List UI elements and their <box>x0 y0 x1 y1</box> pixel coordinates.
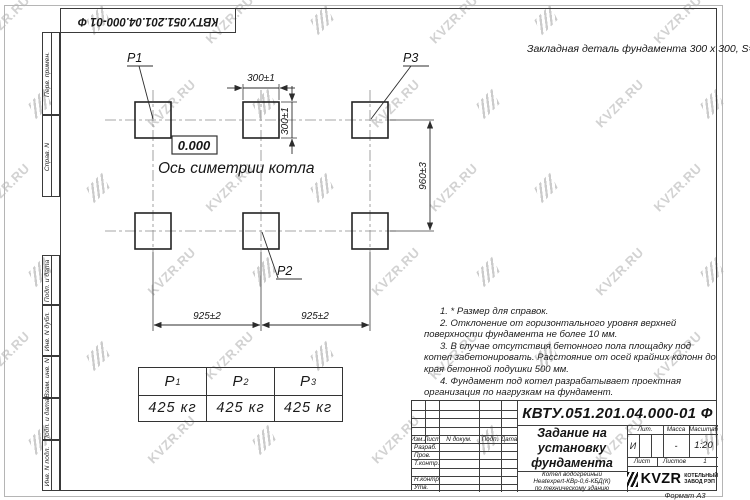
extension-lines <box>153 84 434 331</box>
tb-product: Котел водогрейный Heatexpert-КВр-0,6-КБД… <box>517 471 627 492</box>
tb-row-nkontr: Н.контр. <box>412 476 439 484</box>
tb-lit-value: И <box>627 434 639 457</box>
pad-label-p2: Р2 <box>277 264 292 278</box>
load-table-header-p1: Р1 <box>139 368 206 395</box>
dim-col-spacing-2: 925±2 <box>301 311 329 322</box>
tb-header-izm-list: Изм.Лист <box>412 435 439 443</box>
load-table: Р1 Р2 Р3 425 кг 425 кг 425 кг <box>138 367 343 422</box>
tb-logo-area: KVZR КОТЕЛЬНЫЙ ЗАВОД РЭП <box>627 466 718 492</box>
note-4: 4. Фундамент под котел разрабатывает про… <box>424 376 716 399</box>
title-block: Изм.Лист N докум. Подп. Дата Разраб. Про… <box>411 400 717 491</box>
tb-row-utv: Утв. <box>412 484 439 492</box>
note-1: 1. * Размер для справок. <box>424 306 716 318</box>
tb-title: Задание на установку фундамента <box>517 425 627 471</box>
kvzr-logo-text: KVZR <box>641 471 682 487</box>
format-label: Формат А3 <box>640 491 730 500</box>
note-2: 2. Отклонение от горизонтального уровня … <box>424 318 716 341</box>
dim-col-spacing-1: 925±2 <box>193 311 221 322</box>
sheet-content: КВТУ.051.201.04.000-01 Ф Перв. примен. С… <box>0 0 750 500</box>
tb-scale-value: 1:20 <box>689 434 718 457</box>
tb-scale-header: Масштаб <box>689 425 718 434</box>
note-3: 3. В случае отсутствия бетонного пола пл… <box>424 341 716 376</box>
tb-header-ndoc: N докум. <box>439 435 479 443</box>
kvzr-logo-caption: КОТЕЛЬНЫЙ ЗАВОД РЭП <box>684 473 718 485</box>
tb-row-tkontr: Т.контр. <box>412 459 439 467</box>
tb-header-data: Дата <box>501 435 517 443</box>
drawing-sheet: KVZR.RUKVZR.RUKVZR.RUKVZR.RUKVZR.RUKVZR.… <box>0 0 750 500</box>
tb-doc-number: КВТУ.051.201.04.000-01 Ф <box>517 401 718 425</box>
tb-sheets-label: Листов <box>657 457 692 466</box>
tb-row-prov: Пров. <box>412 451 439 459</box>
tb-mass-header: Масса <box>663 425 689 434</box>
tb-mass-value: - <box>663 434 689 457</box>
pad-label-p3: Р3 <box>403 51 418 65</box>
tb-header-podp: Подп. <box>479 435 501 443</box>
load-table-header-p3: Р3 <box>275 368 341 395</box>
tb-lit-header: Лит. <box>627 425 663 434</box>
tb-sheets-value: 1 <box>692 457 718 466</box>
notes-block: 1. * Размер для справок. 2. Отклонение о… <box>424 306 716 399</box>
tb-row-razrab: Разраб. <box>412 443 439 451</box>
dim-pad-height: 300±1 <box>280 107 291 135</box>
load-table-value-p1: 425 кг <box>139 395 206 420</box>
kvzr-logo-icon <box>627 472 638 487</box>
pad-label-p1: Р1 <box>127 51 142 65</box>
load-table-value-p3: 425 кг <box>275 395 341 420</box>
elevation-value: 0.000 <box>178 138 211 153</box>
dim-row-spacing: 960±3 <box>418 162 429 190</box>
load-table-value-p2: 425 кг <box>207 395 274 420</box>
load-table-header-p2: Р2 <box>207 368 274 395</box>
boiler-axis-label: Ось симетрии котла <box>158 160 315 177</box>
dim-pad-width: 300±1 <box>247 73 275 84</box>
tb-sheet-label: Лист <box>627 457 657 466</box>
embed-detail-note: Закладная деталь фундамента 300 х 300, S… <box>527 43 750 55</box>
